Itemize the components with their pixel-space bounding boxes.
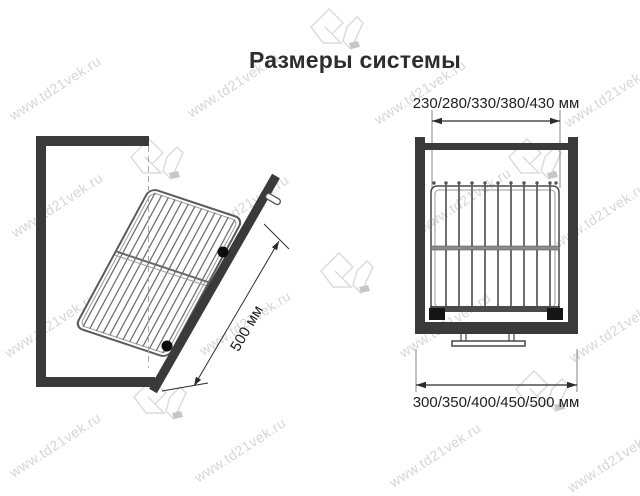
door-mount-dot (218, 247, 229, 258)
mount-bracket-left (429, 308, 445, 320)
cabinet-right-panel (568, 137, 578, 323)
dimension-top-width (432, 118, 560, 124)
dimension-diagram-page: { "page": { "title": "Размеры системы" }… (0, 0, 640, 480)
dimension-label-top-width: 230/280/330/380/430 мм (406, 95, 586, 112)
cabinet-foot (452, 334, 525, 346)
page-title: Размеры системы (70, 47, 640, 74)
wire-basket-front (429, 181, 563, 320)
cabinet-left-panel (36, 136, 46, 387)
cabinet-frame-front (415, 137, 578, 334)
door-mount-dot (162, 341, 173, 352)
cabinet-bottom-panel (415, 322, 578, 334)
basket-bottom-rail (430, 306, 560, 312)
cabinet-bottom-panel (36, 377, 155, 387)
right-diagram-front-view (415, 110, 578, 392)
arrowhead-right (567, 382, 577, 388)
left-diagram-side-view (36, 136, 289, 391)
cabinet-left-panel (415, 137, 425, 323)
arrowhead-right (550, 118, 560, 124)
extension-line (162, 383, 208, 391)
basket-wires (446, 184, 550, 307)
dimension-bottom-width (416, 349, 577, 392)
wire-top-balls (432, 181, 557, 184)
foot-base-plate (452, 341, 525, 346)
door-hook-fitting (265, 192, 282, 205)
cabinet-top-panel (36, 136, 149, 146)
mount-bracket-right (547, 308, 563, 320)
arrowhead-up (272, 241, 279, 250)
dimension-label-bottom-width: 300/350/400/450/500 мм (402, 394, 590, 411)
arrowhead-left (416, 382, 426, 388)
cabinet-top-rail (425, 143, 568, 150)
basket-mid-rail (431, 246, 559, 250)
arrowhead-left (432, 118, 442, 124)
